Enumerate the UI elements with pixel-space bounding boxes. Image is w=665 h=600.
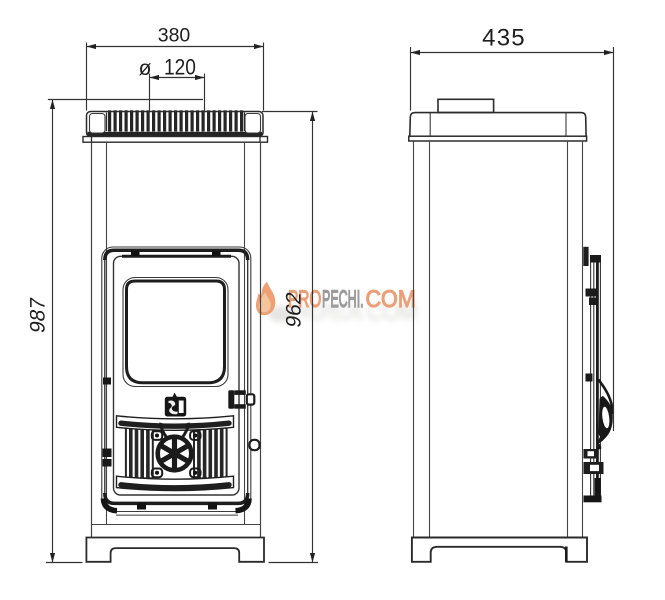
svg-text:962: 962 — [283, 290, 306, 329]
svg-text:380: 380 — [158, 25, 191, 47]
svg-text:PECHI.: PECHI. — [322, 286, 364, 314]
svg-text:987: 987 — [27, 296, 50, 335]
svg-text:COM: COM — [366, 285, 416, 313]
svg-text:120: 120 — [164, 55, 196, 80]
svg-text:ø: ø — [139, 57, 152, 80]
svg-text:435: 435 — [482, 25, 526, 52]
